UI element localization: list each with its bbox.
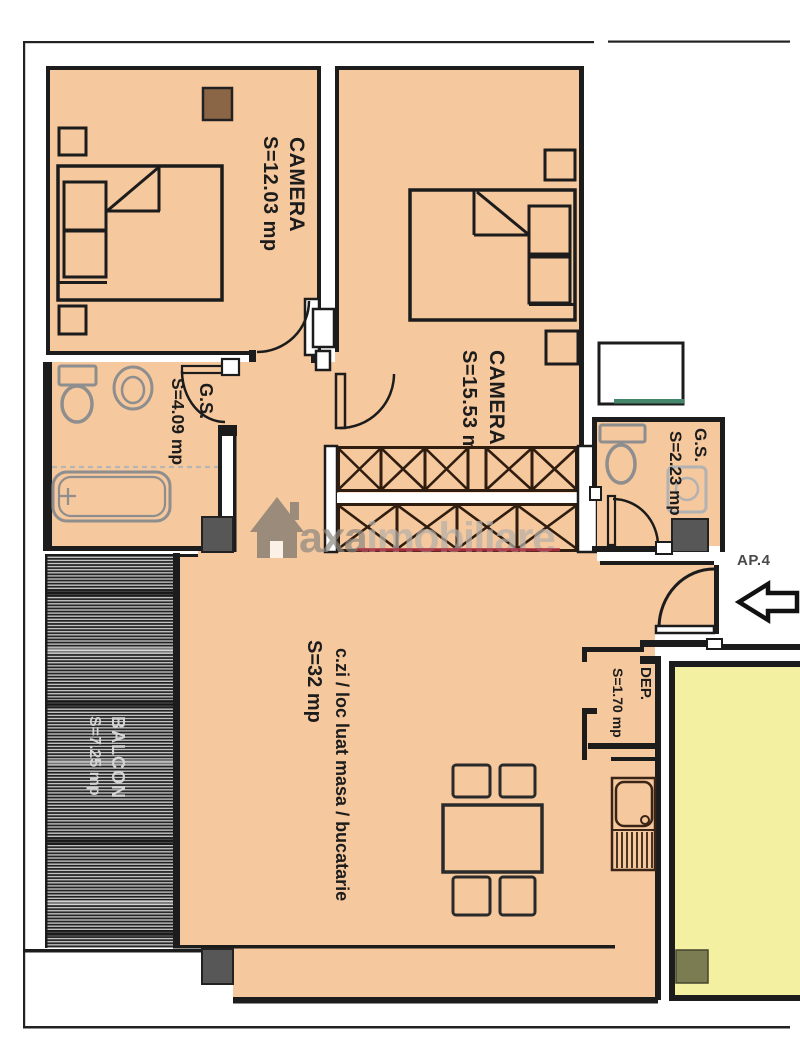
svg-text:BALCON: BALCON — [108, 716, 128, 799]
svg-text:DEP.: DEP. — [637, 667, 654, 700]
svg-text:G.S.: G.S. — [691, 428, 710, 462]
svg-text:G.S.: G.S. — [196, 383, 216, 419]
svg-text:S=1.70 mp: S=1.70 mp — [610, 668, 626, 738]
svg-text:S=32 mp: S=32 mp — [303, 640, 325, 723]
svg-text:S=12.03 mp: S=12.03 mp — [259, 136, 281, 252]
svg-text:c.zi / loc luat masa / bucatar: c.zi / loc luat masa / bucatarie — [332, 648, 352, 901]
svg-text:CAMERA: CAMERA — [285, 137, 308, 232]
svg-text:S=7.25 mp: S=7.25 mp — [86, 716, 103, 796]
svg-text:S=2.23 mp: S=2.23 mp — [666, 431, 685, 516]
svg-text:AP.4: AP.4 — [737, 552, 771, 569]
svg-text:CAMERA: CAMERA — [485, 350, 508, 445]
svg-text:axaimobiliare: axaimobiliare — [299, 514, 555, 562]
svg-text:S=4.09 mp: S=4.09 mp — [168, 378, 188, 465]
